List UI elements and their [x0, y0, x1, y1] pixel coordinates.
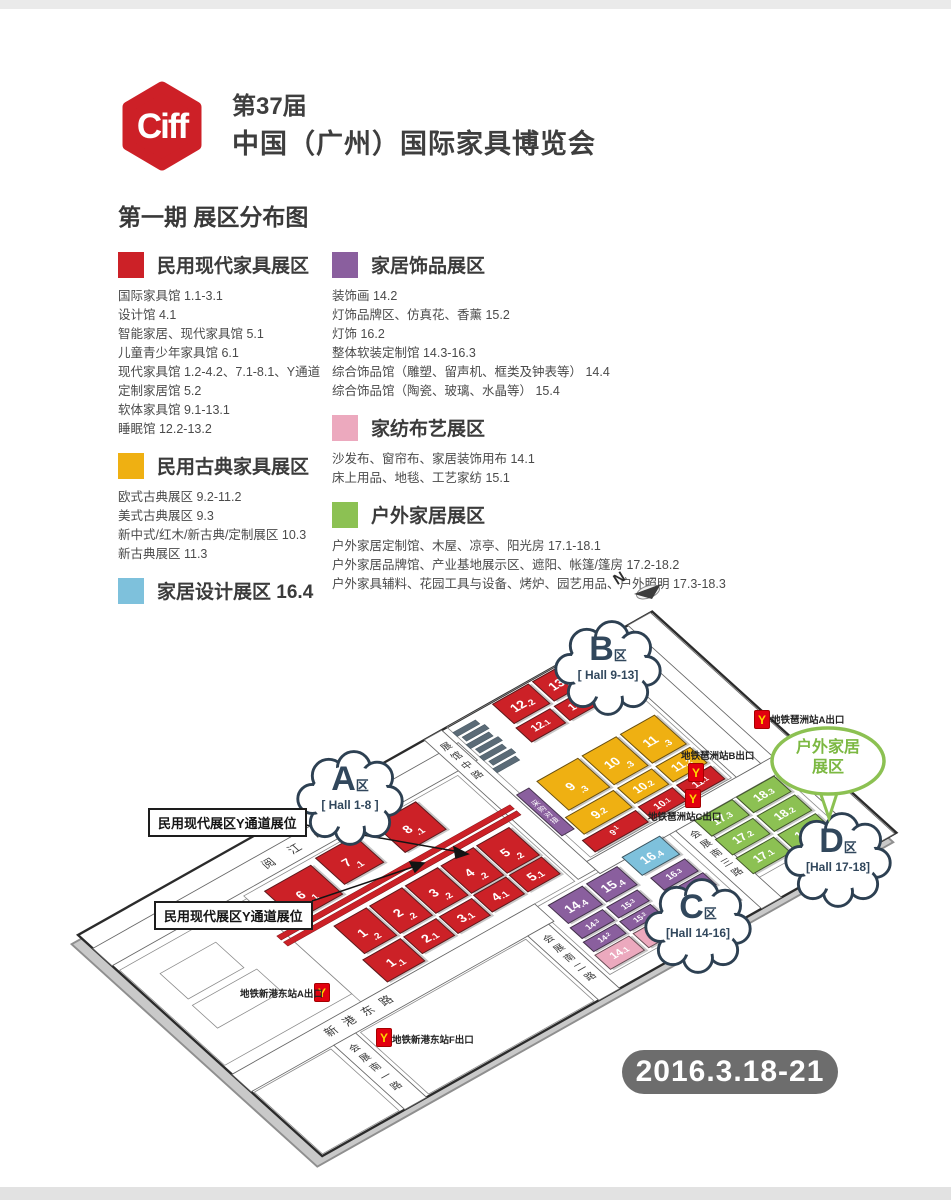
metro-logo-icon: Y — [688, 763, 704, 782]
legend-section-blue: 家居设计展区 16.4 — [118, 577, 332, 604]
legend-item: 欧式古典展区 9.2-11.2 — [118, 488, 332, 507]
zone-cloud-d: D区[Hall 17-18] — [780, 810, 896, 908]
hall-label-sub: .3 — [623, 760, 641, 774]
legend-item: 床上用品、地毯、工艺家纺 15.1 — [332, 469, 662, 488]
metro-exit-label: 地铁琶洲站C出口 — [648, 809, 721, 823]
legend-item: 综合饰品馆（陶瓷、玻璃、水晶等） 15.4 — [332, 382, 662, 401]
legend-swatch-purple — [332, 252, 358, 278]
legend-item: 装饰画 14.2 — [332, 287, 662, 306]
legend-title: 户外家居展区 — [371, 501, 485, 528]
ciff-logo: Ciff — [116, 80, 208, 177]
legend-item: 儿童青少年家具馆 6.1 — [118, 344, 332, 363]
zone-suffix: 区 — [356, 778, 369, 793]
legend-item: 定制家居馆 5.2 — [118, 382, 332, 401]
legend-section-yellow: 民用古典家具展区 — [118, 452, 332, 479]
hall-label-sub: .1 — [394, 957, 412, 971]
hall-label: 1 — [353, 926, 370, 940]
hall-label-sub: .2 — [524, 698, 542, 712]
edition-text: 第37届 — [232, 86, 307, 121]
legend-section-red: 民用现代家具展区 — [118, 251, 332, 278]
hall-label-sub: .2 — [512, 850, 529, 863]
metro-logo-icon: Y — [685, 789, 701, 808]
legend-item: 软体家具馆 9.1-13.1 — [118, 401, 332, 420]
hall-label-sub: .3 — [661, 738, 679, 752]
date-badge: 2016.3.18-21 — [622, 1050, 838, 1094]
legend-title: 民用古典家具展区 — [157, 452, 309, 479]
metro-logo-icon: Y — [754, 710, 770, 729]
legend-item: 国际家具馆 1.1-3.1 — [118, 287, 332, 306]
zone-hall-range: [ Hall 1-8 ] — [292, 798, 408, 812]
zone-hall-range: [ Hall 9-13] — [550, 668, 666, 682]
metro-exit-label: 地铁新港东站A出口 — [240, 986, 323, 1000]
legend-title: 民用现代家具展区 — [157, 251, 309, 278]
zone-hall-range: [Hall 14-16] — [640, 926, 756, 940]
page-title: 第一期 展区分布图 — [118, 198, 308, 232]
poster-canvas: Ciff 第37届 中国（广州）国际家具博览会 第一期 展区分布图 民用现代家具… — [0, 0, 951, 1200]
legend-swatch-green — [332, 502, 358, 528]
legend-swatch-yellow — [118, 453, 144, 479]
zone-letter: D — [819, 822, 844, 860]
fair-title: 中国（广州）国际家具博览会 — [232, 122, 596, 161]
legend-item: 整体软装定制馆 14.3-16.3 — [332, 344, 662, 363]
legend-item: 新中式/红木/新古典/定制展区 10.3 — [118, 526, 332, 545]
legend-section-pink: 家纺布艺展区 — [332, 414, 662, 441]
hall-label: 6 — [292, 888, 309, 902]
hall-label: 10 — [600, 754, 624, 771]
legend-item: 智能家居、现代家具馆 5.1 — [118, 325, 332, 344]
legend-item: 现代家具馆 1.2-4.2、7.1-8.1、Y通道 — [118, 363, 332, 382]
legend-section-purple: 家居饰品展区 — [332, 251, 662, 278]
hall-label-sub: .3 — [577, 784, 595, 798]
ciff-logo-text: Ciff — [137, 107, 190, 146]
legend-title: 家纺布艺展区 — [371, 414, 485, 441]
metro-exit-label: 地铁琶洲站B出口 — [681, 748, 754, 762]
y-channel-callout-2: 民用现代展区Y通道展位 — [154, 901, 313, 930]
zone-letter: C — [679, 888, 704, 926]
hall-label: 2 — [389, 906, 406, 920]
hall-label: 3 — [425, 886, 442, 900]
metro-exit-label: 地铁琶洲站A出口 — [771, 712, 844, 726]
zone-cloud-b: B区[ Hall 9-13] — [550, 618, 666, 716]
hall-label: 11 — [638, 733, 661, 750]
hall-label-sub: .2 — [405, 911, 422, 924]
metro-logo-icon: Y — [376, 1028, 392, 1047]
legend-swatch-pink — [332, 415, 358, 441]
zone-suffix: 区 — [614, 648, 627, 663]
bubble-line1: 户外家居 — [796, 739, 860, 756]
legend-left-column: 民用现代家具展区国际家具馆 1.1-3.1设计馆 4.1智能家居、现代家具馆 5… — [118, 238, 332, 613]
legend-swatch-red — [118, 252, 144, 278]
bottom-border-strip — [0, 1187, 951, 1200]
legend-item: 沙发布、窗帘布、家居装饰用布 14.1 — [332, 450, 662, 469]
metro-exit-label: 地铁新港东站F出口 — [392, 1032, 474, 1046]
y-channel-callout-1: 民用现代展区Y通道展位 — [148, 808, 307, 837]
hall-label: 5 — [496, 845, 513, 859]
legend-title: 家居饰品展区 — [371, 251, 485, 278]
legend-right-column: 家居饰品展区装饰画 14.2灯饰品牌区、仿真花、香薰 15.2灯饰 16.2整体… — [332, 238, 662, 594]
zone-hall-range: [Hall 17-18] — [780, 860, 896, 874]
hall-label-sub: .1 — [413, 826, 431, 840]
zone-cloud-a: A区[ Hall 1-8 ] — [292, 748, 408, 846]
legend-item: 灯饰品牌区、仿真花、香薰 15.2 — [332, 306, 662, 325]
hall-label-sub: .2 — [476, 871, 493, 884]
legend-title: 家居设计展区 16.4 — [157, 577, 313, 604]
legend-section-green: 户外家居展区 — [332, 501, 662, 528]
zone-letter: A — [331, 760, 356, 798]
legend-item: 综合饰品馆（雕塑、留声机、框类及钟表等） 14.4 — [332, 363, 662, 382]
hall-label: 9 — [561, 779, 578, 793]
legend-item: 设计馆 4.1 — [118, 306, 332, 325]
bubble-line2: 展区 — [812, 759, 844, 776]
legend-item: 美式古典展区 9.3 — [118, 507, 332, 526]
zone-cloud-c: C区[Hall 14-16] — [640, 876, 756, 974]
zone-suffix: 区 — [844, 840, 857, 855]
legend-item: 睡眠馆 12.2-13.2 — [118, 420, 332, 439]
legend-item: 灯饰 16.2 — [332, 325, 662, 344]
outdoor-zone-bubble: 户外家居 展区 — [768, 724, 888, 824]
hall-label-sub: .2 — [441, 891, 458, 904]
zone-letter: B — [589, 630, 614, 668]
hall-label-sub: .2 — [369, 931, 386, 944]
legend-item: 新古典展区 11.3 — [118, 545, 332, 564]
top-border-strip — [0, 0, 951, 9]
ciff-logo-hexagon-icon: Ciff — [116, 80, 208, 172]
zone-suffix: 区 — [704, 906, 717, 921]
legend-item: 户外家居定制馆、木屋、凉亭、阳光房 17.1-18.1 — [332, 537, 662, 556]
hall-label: 4 — [460, 866, 477, 880]
legend-swatch-blue — [118, 578, 144, 604]
hall-label-sub: .1 — [352, 859, 370, 873]
